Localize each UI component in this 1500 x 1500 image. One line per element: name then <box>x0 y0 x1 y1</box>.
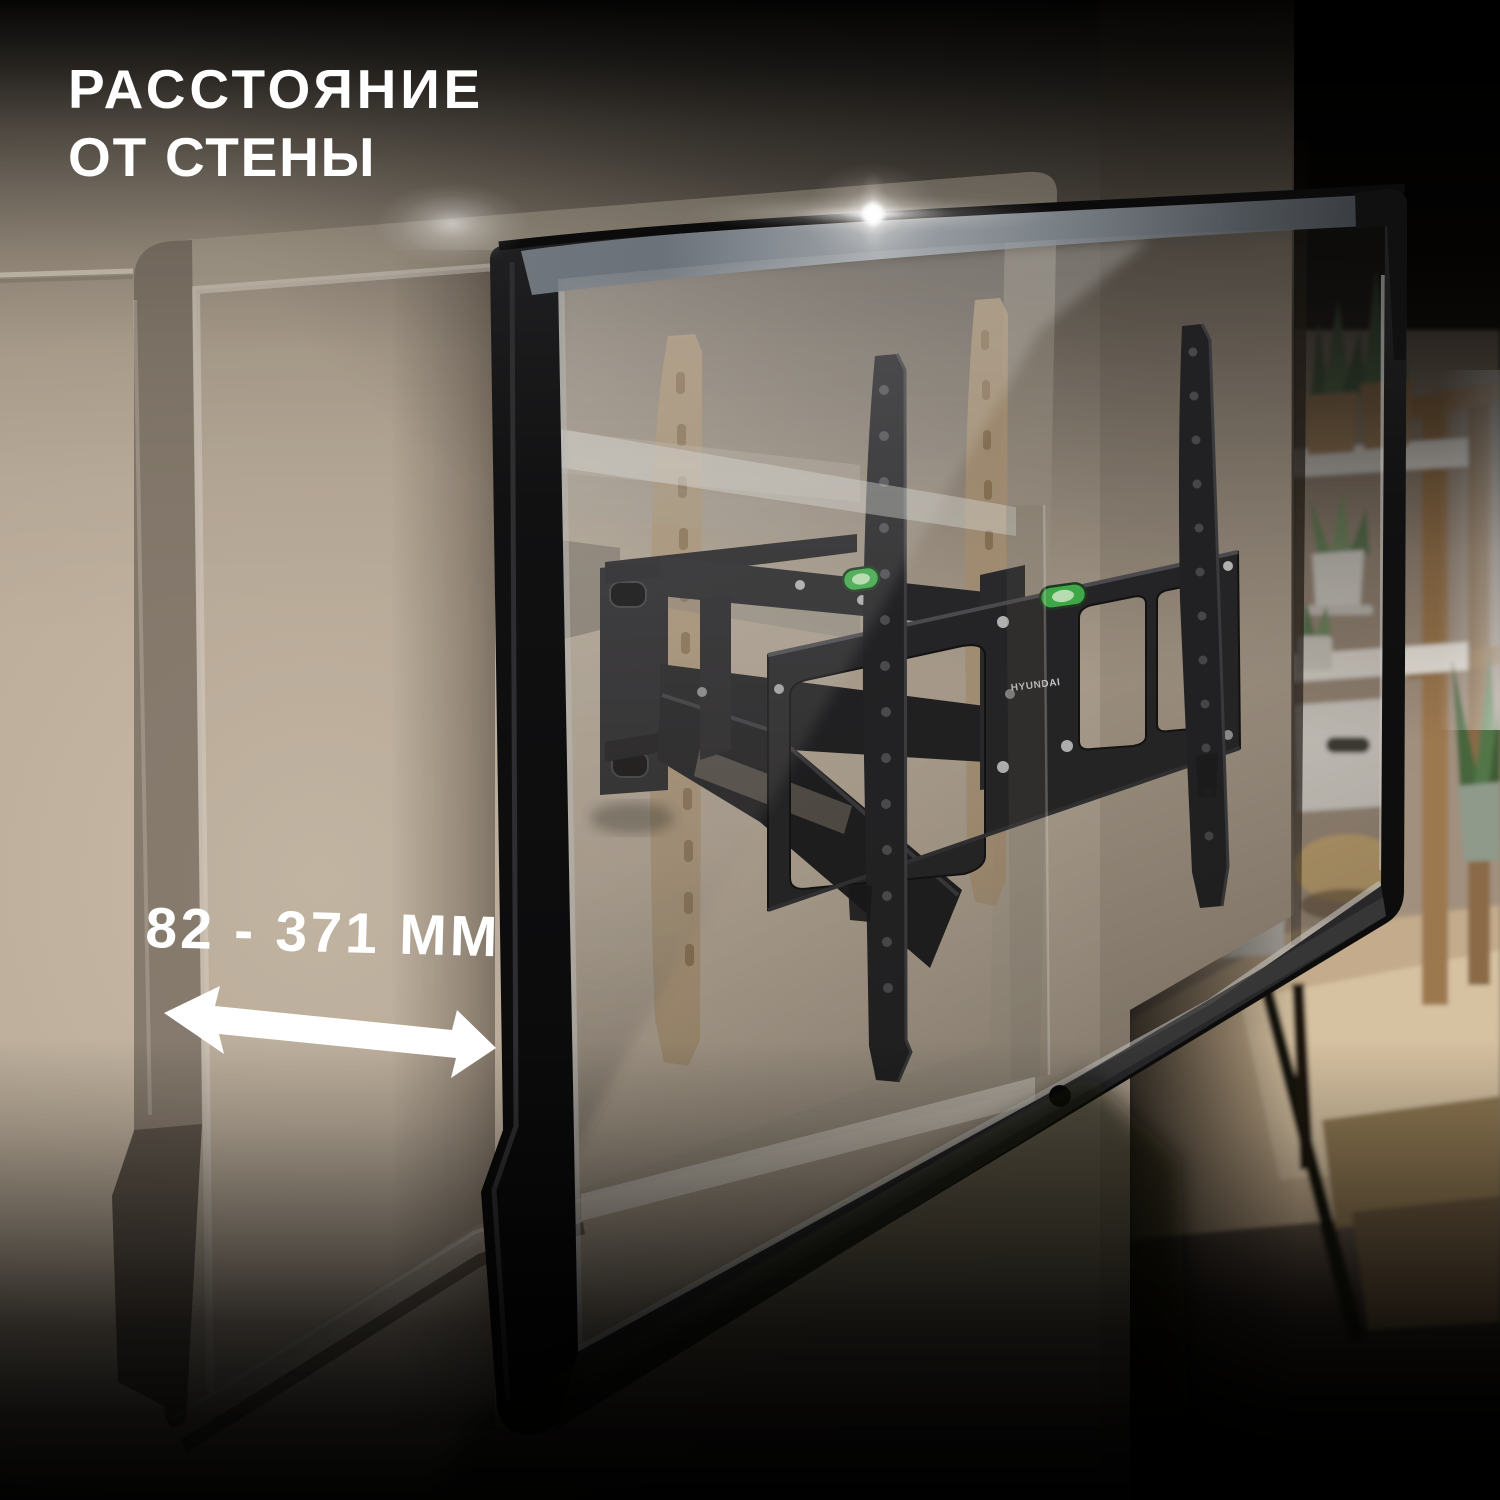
svg-text:ОТ СТЕНЫ: ОТ СТЕНЫ <box>68 126 376 188</box>
svg-text:РАССТОЯНИЕ: РАССТОЯНИЕ <box>68 58 484 120</box>
svg-text:82 - 371 ММ: 82 - 371 ММ <box>145 896 502 969</box>
